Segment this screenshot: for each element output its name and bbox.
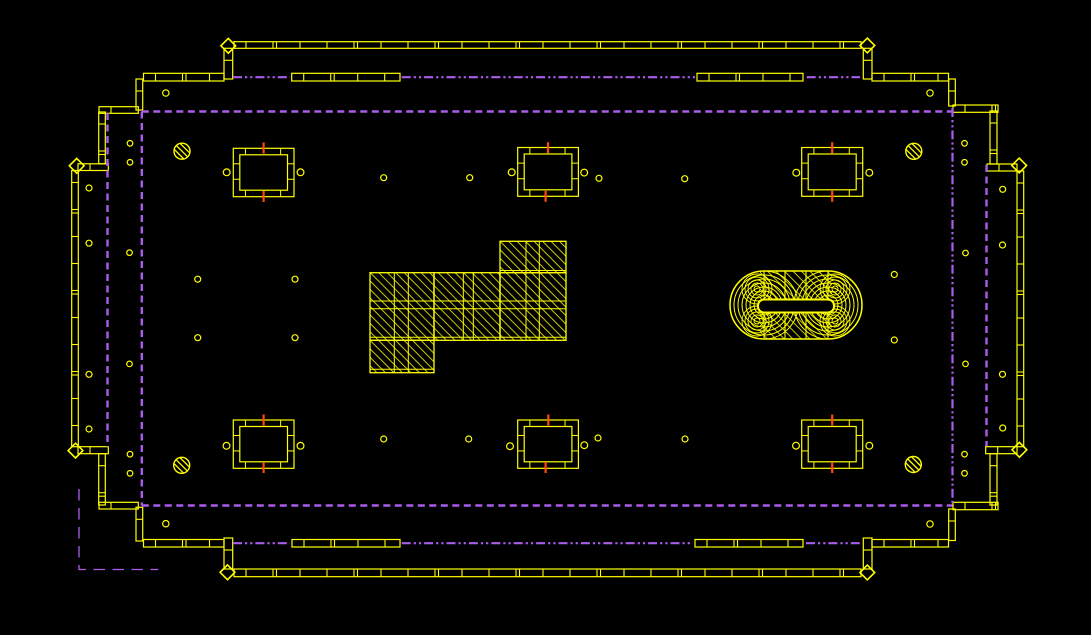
pier-top-left	[233, 148, 294, 196]
top-inner-wall-right	[872, 73, 949, 81]
hatched-circle-marker	[174, 457, 190, 473]
bottom-inner-wall-right	[872, 540, 949, 548]
hatched-circle-marker	[905, 457, 921, 473]
top-inner-wall-left	[144, 73, 225, 81]
top-inner-wall-mid1	[292, 73, 400, 81]
pier-bottom-middle	[518, 420, 579, 468]
bottom-inner-wall-mid1	[292, 540, 400, 548]
step-v1-bottom-left	[136, 507, 143, 541]
right-outer-wall	[1017, 171, 1024, 447]
step-v2-top-right	[990, 111, 997, 164]
pier-top-right	[802, 148, 863, 197]
cad-plan-svg	[0, 0, 1091, 635]
step-v2-bottom-right	[990, 454, 997, 505]
hatched-circle-marker	[174, 143, 190, 159]
pier-top-middle	[518, 148, 579, 197]
step-v2-bottom-left	[99, 454, 106, 505]
stadium-scroll-feature	[730, 271, 862, 339]
bottom-inner-wall-left	[144, 540, 225, 548]
top-inner-wall-mid2	[697, 73, 803, 81]
step-v2-top-left	[99, 112, 106, 164]
connector-bottom-left	[224, 538, 233, 569]
bottom-outer-wall	[234, 569, 861, 577]
setback-corner	[79, 489, 158, 570]
waffle-slab-hatch-region	[370, 241, 566, 372]
pier-bottom-left	[233, 420, 294, 468]
step-wall-bottom-right	[953, 502, 998, 509]
left-outer-wall	[72, 171, 79, 447]
step-v1-top-right	[949, 79, 956, 106]
cad-drawing-canvas	[0, 0, 1091, 635]
top-outer-wall	[234, 42, 861, 49]
hatched-circle-marker	[906, 143, 922, 159]
step-v1-bottom-right	[949, 509, 956, 541]
pier-bottom-right	[802, 420, 863, 468]
bottom-inner-wall-mid2	[695, 540, 803, 548]
step-v1-top-left	[136, 79, 143, 110]
